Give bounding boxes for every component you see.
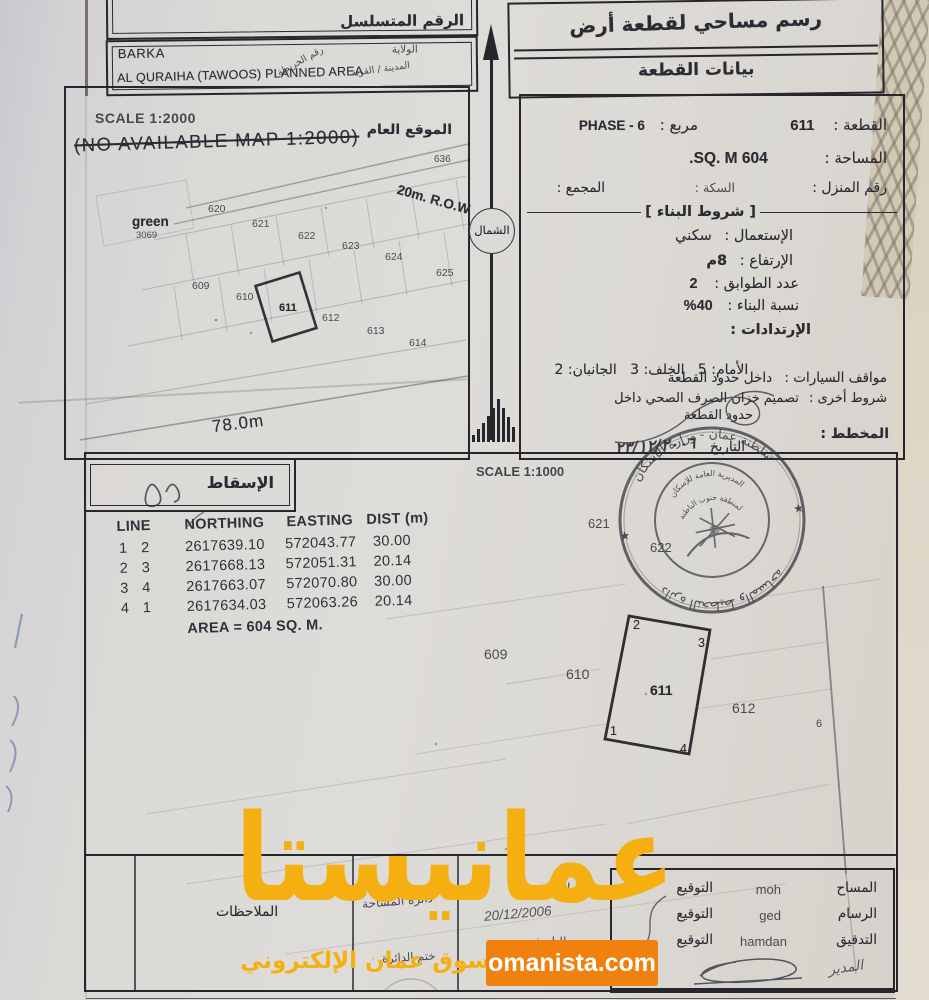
- doc-subtitle: بيانات القطعة: [510, 57, 882, 82]
- height-value: 8م: [706, 253, 727, 269]
- table-cell: 2: [119, 561, 128, 577]
- svg-text:لمنطقة جنوب الباطنة: لمنطقة جنوب الباطنة: [674, 488, 745, 522]
- complex-label: المجمع :: [557, 180, 605, 196]
- general-location-label: الموقع العام: [367, 122, 452, 138]
- doc-title: رسم مساحي لقطعة أرض: [509, 4, 882, 40]
- area-line: المساحة : 604 SQ. M.: [689, 149, 887, 168]
- audit-sign-label: التوقيع: [676, 932, 713, 948]
- plot-label-623: 623: [342, 240, 360, 252]
- table-cell: 2617668.13: [185, 557, 265, 575]
- plot-label-610: 610: [236, 291, 254, 303]
- official-stamp: سلطنة عمان - وزارة الإسكان دائرة التخطيط…: [598, 406, 827, 635]
- house-number-label-line: رقم المنزل :: [812, 180, 887, 196]
- table-cell: 572070.80: [286, 574, 358, 592]
- site-plot-609: 609: [484, 646, 507, 662]
- corner-label-1: 1: [610, 724, 617, 738]
- plot-label-609: 609: [192, 280, 210, 292]
- serial-number-label: الرقم المتسلسل: [340, 11, 464, 30]
- plot-label-622: 622: [298, 230, 316, 242]
- table-cell: 572051.31: [285, 554, 357, 572]
- setbacks-line: الإرتدادات :: [730, 322, 811, 338]
- north-label: الشمال: [470, 223, 514, 237]
- planner-line: المخطط :: [820, 426, 889, 442]
- area-note: AREA = 604 SQ. M.: [187, 617, 323, 637]
- paper-fold-line: [85, 0, 88, 96]
- green-area-number: 3069: [136, 230, 157, 241]
- use-value: سكني: [675, 228, 712, 244]
- floors-value: 2: [690, 276, 698, 292]
- table-cell: 2617663.07: [186, 577, 266, 595]
- area-value: 604 SQ. M.: [689, 150, 767, 167]
- plot-label-624: 624: [385, 251, 403, 263]
- building-conditions-header: [ شروط البناء ]: [527, 204, 897, 220]
- site-plot-612: 612: [732, 700, 755, 716]
- site-plot-edge: 6: [816, 718, 822, 730]
- general-map-scale: SCALE 1:2000: [95, 110, 196, 126]
- table-cell: 2: [141, 540, 150, 556]
- other-conditions-label: شروط أخرى :: [809, 391, 887, 406]
- watermark-site-box: omanista.com: [486, 940, 658, 986]
- house-number-label: رقم المنزل :: [812, 180, 887, 196]
- stamp-star-right: ★: [792, 501, 805, 517]
- projection-handwriting: [136, 468, 196, 508]
- col-header-easting: EASTING: [286, 512, 353, 530]
- corner-label-3: 3: [698, 636, 705, 650]
- north-label-circle: الشمال: [469, 208, 515, 254]
- wilaya-label: الولاية: [392, 43, 418, 55]
- projection-header-box: الإسقاط: [84, 458, 296, 512]
- area-label: المساحة :: [825, 149, 888, 167]
- plot-number-line: القطعة : 611: [790, 116, 887, 134]
- floors-line: عدد الطوابق : 2: [690, 276, 800, 292]
- ratio-label: نسبة البناء :: [727, 298, 799, 314]
- table-cell: 30.00: [374, 573, 412, 590]
- parking-label: مواقف السيارات :: [784, 370, 887, 386]
- plot-label-614: 614: [409, 337, 427, 349]
- table-cell: 2617634.03: [187, 597, 267, 615]
- stamp-inner-text-2: لمنطقة جنوب الباطنة: [674, 488, 745, 522]
- scanned-survey-document: الرقم المتسلسل BARKA AL QURAIHA (TAWOOS)…: [0, 0, 929, 1000]
- plot-label-612: 612: [322, 312, 340, 324]
- audit-name: hamdan: [740, 934, 787, 949]
- col-header-northing: NORTHING: [184, 515, 264, 533]
- ratio-line: نسبة البناء : 40%: [684, 298, 799, 314]
- planned-area-value: AL QURAIHA (TAWOOS) PLANNED AREA: [117, 64, 364, 85]
- draftsman-role: الرسام: [838, 906, 877, 922]
- north-scale-bars: [465, 396, 521, 442]
- floors-label: عدد الطوابق :: [714, 276, 799, 292]
- building-conditions-title: شروط البناء: [657, 204, 745, 220]
- blue-pen-marks: [0, 600, 40, 820]
- block-value: PHASE - 6: [579, 118, 645, 133]
- north-arrow-head: [483, 24, 499, 60]
- serial-number-box: الرقم المتسلسل: [106, 0, 479, 40]
- plot-label-621: 621: [252, 218, 270, 230]
- col-header-dist: DIST (m): [366, 510, 428, 528]
- table-cell: 572043.77: [285, 534, 357, 552]
- watermark-subtitle: سوق عمان الإلكتروني: [340, 948, 490, 974]
- use-label: الإستعمال :: [724, 228, 793, 244]
- footer-vline-1: [134, 856, 136, 990]
- table-cell: 4: [142, 580, 151, 596]
- table-cell: 30.00: [373, 533, 411, 550]
- director-signature-scribble: [692, 950, 812, 988]
- block-line: مربع : PHASE - 6: [579, 116, 698, 134]
- plot-label-636: 636: [434, 154, 451, 165]
- watermark-title: عمانيستا: [235, 796, 675, 922]
- site-plan-scale: SCALE 1:1000: [476, 464, 564, 479]
- surveyor-sign-label: التوقيع: [676, 880, 713, 896]
- green-area-label: green: [132, 214, 169, 229]
- planner-label: المخطط :: [820, 426, 889, 442]
- projection-label: الإسقاط: [207, 473, 274, 492]
- plot-label-620: 620: [208, 203, 226, 215]
- table-cell: 3: [120, 581, 129, 597]
- town-label: المدينة / القرية: [350, 60, 410, 79]
- table-cell: 1: [119, 541, 128, 557]
- height-line: الإرتفاع : 8م: [706, 253, 793, 269]
- site-plot-610: 610: [566, 666, 589, 682]
- general-map-box: SCALE 1:2000 (NO AVAILABLE MAP 1:2000) ا…: [64, 86, 470, 460]
- plot-label-611: 611: [279, 302, 297, 314]
- table-cell: 4: [121, 601, 130, 617]
- block-label: مربع :: [660, 116, 698, 134]
- site-plot-621: 621: [588, 516, 610, 531]
- height-label: الإرتفاع :: [740, 253, 793, 269]
- stamp-star-left: ★: [618, 528, 631, 544]
- audit-role: التدقيق: [836, 932, 877, 948]
- table-cell: 20.14: [373, 553, 411, 570]
- plot-number-value: 611: [790, 117, 814, 134]
- table-cell: 3: [141, 560, 150, 576]
- stamp-graphic: سلطنة عمان - وزارة الإسكان دائرة التخطيط…: [598, 406, 827, 635]
- director-label-handwritten: المدير: [827, 958, 864, 979]
- coordinates-table: LINE NORTHING EASTING DIST (m) 1 2 26176…: [114, 509, 477, 644]
- draftsman-sign-label: التوقيع: [676, 906, 713, 922]
- site-plot-611: 611: [650, 682, 673, 698]
- table-cell: 2617639.10: [185, 537, 265, 555]
- title-box: رسم مساحي لقطعة أرض بيانات القطعة: [507, 0, 884, 99]
- footer-bottom-rule: [86, 998, 896, 999]
- col-header-line: LINE: [116, 518, 151, 535]
- surveyor-role: المساح: [836, 880, 877, 896]
- plot-number-label: القطعة :: [833, 116, 887, 134]
- draftsman-name: ged: [759, 908, 781, 923]
- plot-label-613: 613: [367, 325, 385, 337]
- use-line: الإستعمال : سكني: [675, 228, 793, 244]
- table-cell: 20.14: [375, 593, 413, 610]
- watermark-site-url: omanista.com: [488, 949, 656, 978]
- plot-label-625: 625: [436, 267, 454, 279]
- surveyor-name: moh: [756, 882, 781, 897]
- setbacks-label: الإرتدادات :: [730, 322, 811, 338]
- wilaya-value: BARKA: [118, 46, 165, 62]
- corner-label-4: 4: [680, 742, 687, 756]
- table-cell: 1: [143, 600, 152, 616]
- table-cell: 572063.26: [287, 594, 359, 612]
- ratio-value: 40%: [684, 298, 713, 314]
- plot-data-box: القطعة : 611 مربع : PHASE - 6 المساحة : …: [519, 94, 905, 460]
- lane-label: السكة :: [695, 180, 735, 195]
